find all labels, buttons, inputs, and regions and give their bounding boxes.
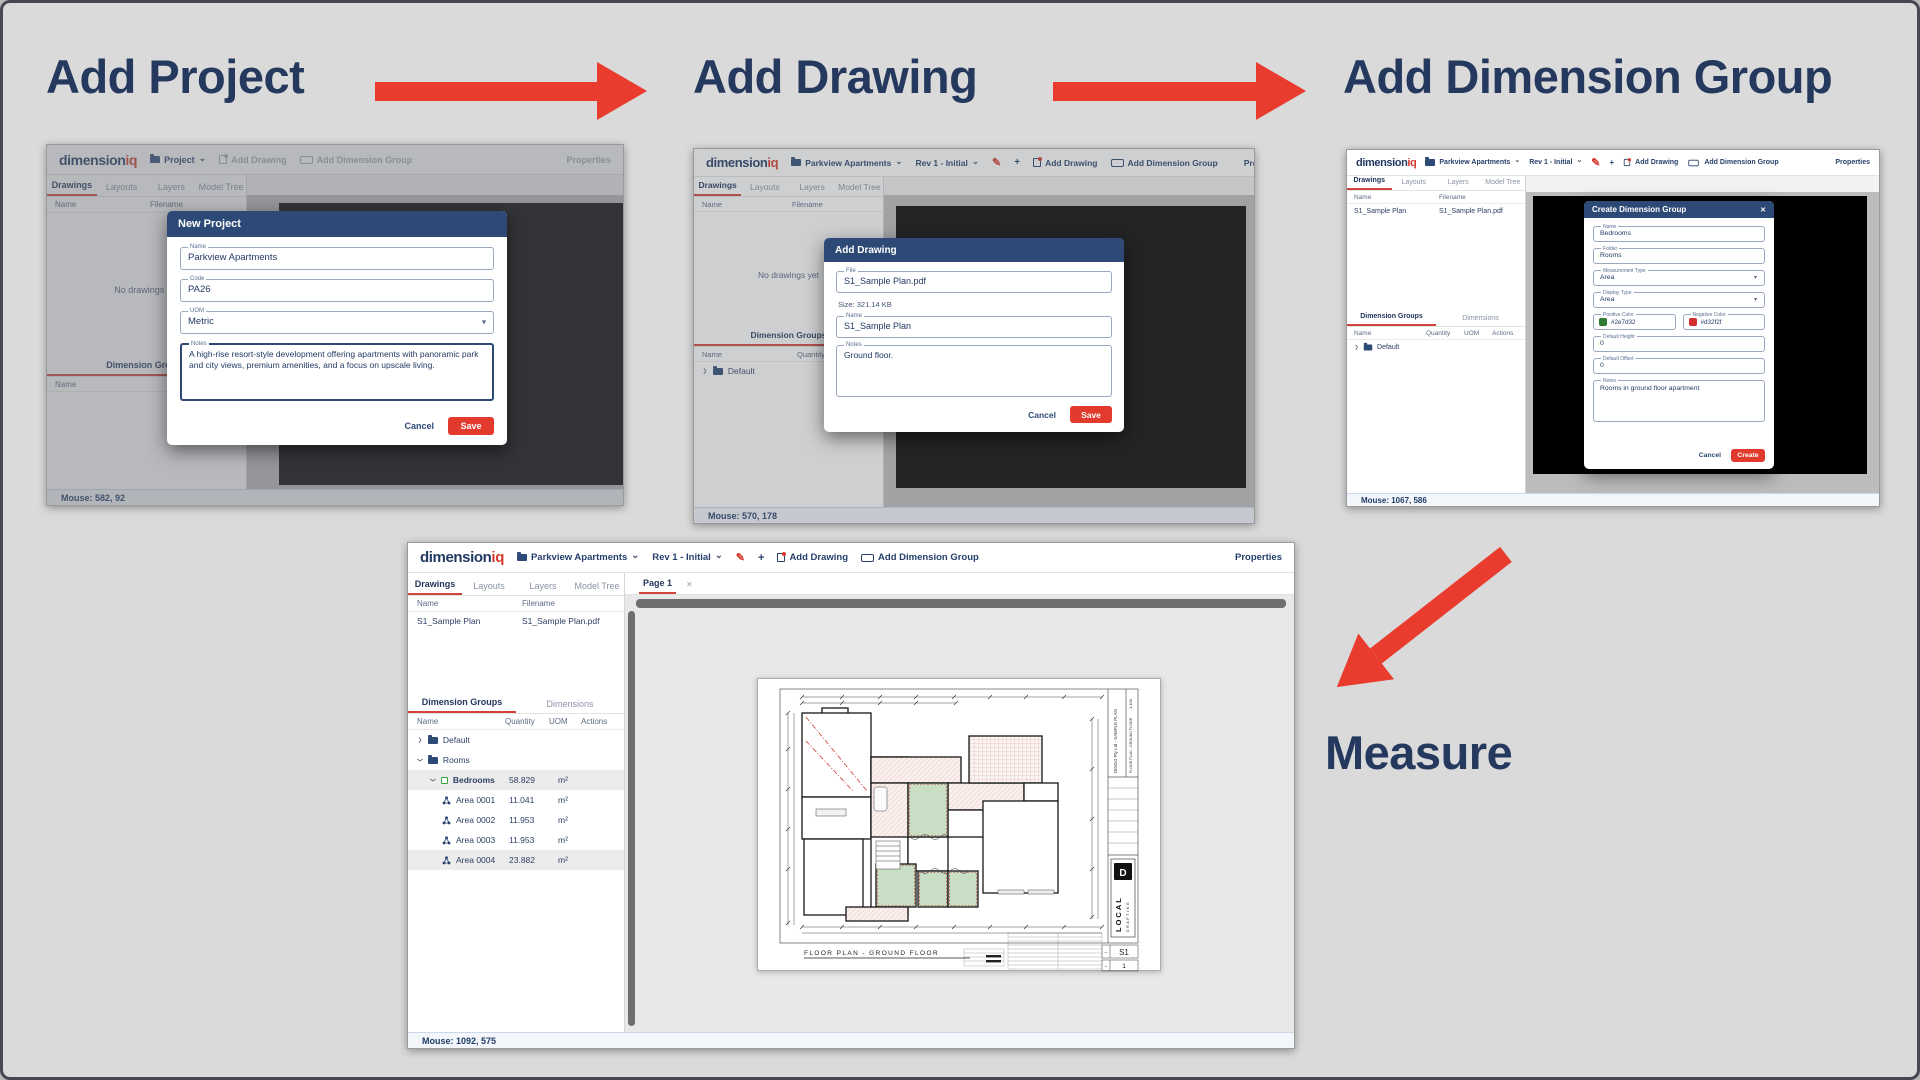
drawing-row[interactable]: S1_Sample Plan S1_Sample Plan.pdf xyxy=(1347,204,1525,218)
tab-layouts[interactable]: Layouts xyxy=(97,182,147,196)
app-logo: dimensioniq xyxy=(420,549,504,566)
vertical-scrollbar[interactable] xyxy=(628,611,635,1026)
create-button[interactable]: Create xyxy=(1731,449,1765,462)
add-dimension-group-button[interactable]: Add Dimension Group xyxy=(1687,159,1778,167)
folder-icon xyxy=(791,159,801,166)
modal-title: New Project xyxy=(167,211,507,237)
tutorial-canvas: Add Project Add Drawing Add Dimension Gr… xyxy=(0,0,1920,1080)
chevron-down-icon xyxy=(430,776,436,784)
folder-icon xyxy=(713,368,723,375)
folder-icon xyxy=(150,156,160,163)
negative-color-swatch[interactable] xyxy=(1689,318,1697,326)
new-project-modal: New Project Name Parkview Apartments Cod… xyxy=(167,211,507,445)
folder-field[interactable]: Folder Rooms xyxy=(1593,248,1765,264)
drawing-row[interactable]: S1_Sample Plan S1_Sample Plan.pdf xyxy=(408,612,624,629)
groups-col-quantity: Quantity xyxy=(505,717,549,726)
measurement-type-select[interactable]: Measurement Type Area xyxy=(1593,270,1765,286)
chevron-right-icon xyxy=(1354,344,1359,351)
status-bar: Mouse: 582, 92 xyxy=(47,489,623,505)
save-button[interactable]: Save xyxy=(1070,406,1112,423)
groups-col-actions: Actions xyxy=(1492,330,1518,337)
tab-dimension-groups[interactable]: Dimension Groups xyxy=(1347,313,1436,326)
tab-model-tree[interactable]: Model Tree xyxy=(570,581,624,595)
tab-dimensions[interactable]: Dimensions xyxy=(1436,315,1525,326)
chevron-down-icon xyxy=(715,552,723,563)
tab-drawings[interactable]: Drawings xyxy=(1347,177,1392,190)
save-button[interactable]: Save xyxy=(448,417,494,435)
chevron-right-icon xyxy=(417,736,423,744)
status-bar: Mouse: 1092, 575 xyxy=(408,1032,1294,1048)
tab-page-1[interactable]: Page 1 xyxy=(639,578,676,594)
revision-menu[interactable]: Rev 1 - Initial xyxy=(1529,159,1582,166)
app-logo: dimensioniq xyxy=(59,152,137,168)
folder-icon xyxy=(1364,345,1373,351)
sheet-number: S1 xyxy=(1119,948,1129,957)
dimension-group-icon xyxy=(441,777,448,784)
add-drawing-icon xyxy=(1624,159,1630,166)
page-tab-bar: Page 1 ✕ xyxy=(625,573,1294,595)
name-field[interactable]: Name Parkview Apartments xyxy=(180,247,494,270)
revision-menu[interactable]: Rev 1 - Initial xyxy=(915,158,979,168)
add-drawing-icon xyxy=(219,155,227,164)
edit-revision-icon[interactable] xyxy=(1591,156,1600,169)
drawings-col-filename: Filename xyxy=(522,599,555,608)
file-size-text: Size: 321.14 KB xyxy=(836,300,1112,309)
step-heading-add-drawing: Add Drawing xyxy=(693,49,977,104)
file-field[interactable]: File S1_Sample Plan.pdf xyxy=(836,271,1112,293)
close-page-tab-icon[interactable]: ✕ xyxy=(686,580,693,594)
tab-dimensions[interactable]: Dimensions xyxy=(516,699,624,713)
folder-icon xyxy=(517,554,527,561)
group-row-default[interactable]: Default xyxy=(1347,340,1525,355)
groups-col-name: Name xyxy=(702,350,797,359)
close-icon[interactable]: ✕ xyxy=(1760,206,1766,214)
tree-row-area-0002[interactable]: Area 0002 11.953 m² xyxy=(408,810,624,830)
add-drawing-button[interactable]: Add Drawing xyxy=(1033,158,1097,168)
status-bar: Mouse: 1067, 586 xyxy=(1347,493,1879,506)
floor-plan-drawing: DINGO Pty Ltd - SAMPLE PLAN FLOOR PLAN -… xyxy=(758,679,1162,972)
revision-menu[interactable]: Rev 1 - Initial xyxy=(652,552,723,563)
drawings-col-filename: Filename xyxy=(792,200,823,209)
add-dimension-group-button[interactable]: Add Dimension Group xyxy=(861,552,979,563)
notes-field[interactable]: Notes A high-rise resort-style developme… xyxy=(180,343,494,401)
properties-button: Properties xyxy=(566,155,611,165)
add-dimension-group-button[interactable]: Add Dimension Group xyxy=(1111,158,1218,168)
dropdown-arrow-icon xyxy=(1754,296,1757,303)
cancel-button[interactable]: Cancel xyxy=(1699,452,1721,459)
sidebar: Drawings Layouts Layers Model Tree Name … xyxy=(408,573,625,1032)
chevron-down-icon xyxy=(895,158,902,168)
folder-icon xyxy=(1425,159,1435,166)
chevron-down-icon xyxy=(1514,159,1520,166)
properties-button[interactable]: Properties xyxy=(1835,159,1870,166)
add-dimension-group-icon xyxy=(1111,159,1124,167)
area-icon xyxy=(442,856,451,865)
tree-row-group-bedrooms[interactable]: Bedrooms 58.829 m² xyxy=(408,770,624,790)
svg-text:–: – xyxy=(1105,950,1108,956)
arrow-diagonal-measure xyxy=(1319,532,1524,710)
tab-model-tree[interactable]: Model Tree xyxy=(836,182,883,196)
area-icon xyxy=(442,836,451,845)
chevron-down-icon xyxy=(1576,159,1582,166)
folder-icon xyxy=(428,737,438,744)
add-dimension-group-icon xyxy=(1689,159,1699,165)
drawings-col-name: Name xyxy=(1354,194,1439,201)
add-dimension-group-icon xyxy=(861,554,874,562)
properties-button[interactable]: Properties xyxy=(1244,158,1255,168)
screenshot-measure: dimensioniq Parkview Apartments Rev 1 - … xyxy=(407,542,1295,1049)
dropdown-arrow-icon xyxy=(482,317,486,326)
code-field[interactable]: Code PA26 xyxy=(180,279,494,302)
viewer-canvas: DINGO Pty Ltd - SAMPLE PLAN FLOOR PLAN -… xyxy=(625,595,1294,1032)
tab-dimension-groups[interactable]: Dimension Groups xyxy=(408,697,516,713)
groups-col-quantity: Quantity xyxy=(797,350,825,359)
tab-model-tree[interactable]: Model Tree xyxy=(1481,179,1526,190)
app-header: dimensioniq Parkview Apartments Rev 1 - … xyxy=(408,543,1294,573)
project-menu[interactable]: Parkview Apartments xyxy=(791,158,902,168)
tab-layers[interactable]: Layers xyxy=(516,581,570,595)
screenshot-add-dimension-group: dimensioniq Parkview Apartments Rev 1 - … xyxy=(1346,149,1880,507)
positive-color-field[interactable]: Positive Color #2e7d32 xyxy=(1593,314,1676,330)
project-menu[interactable]: Parkview Apartments xyxy=(517,552,639,563)
edit-revision-icon[interactable] xyxy=(736,551,745,564)
app-logo: dimensioniq xyxy=(1356,157,1416,169)
name-field[interactable]: Name Bedrooms xyxy=(1593,226,1765,242)
arrow-right-2 xyxy=(1053,62,1306,120)
groups-col-uom: UOM xyxy=(549,717,581,726)
tab-drawings[interactable]: Drawings xyxy=(408,579,462,595)
drawings-col-name: Name xyxy=(417,599,522,608)
default-height-field[interactable]: Default Height 0 xyxy=(1593,336,1765,352)
tab-layouts[interactable]: Layouts xyxy=(741,182,788,196)
chevron-down-icon xyxy=(199,155,207,165)
edit-revision-icon[interactable] xyxy=(992,156,1001,169)
tab-layers[interactable]: Layers xyxy=(1436,179,1481,190)
add-revision-icon[interactable] xyxy=(1014,157,1020,168)
groups-col-name: Name xyxy=(417,717,505,726)
project-menu[interactable]: Project xyxy=(150,155,206,165)
cancel-button[interactable]: Cancel xyxy=(404,421,434,431)
tree-row-area-0003[interactable]: Area 0003 11.953 m² xyxy=(408,830,624,850)
app-header: dimensioniq Parkview Apartments Rev 1 - … xyxy=(1347,150,1879,176)
svg-text:D: D xyxy=(1119,868,1126,879)
svg-text:–: – xyxy=(1105,964,1108,970)
plan-title: FLOOR PLAN - GROUND FLOOR xyxy=(804,950,939,957)
arrow-right-1 xyxy=(375,62,647,120)
svg-text:DRAFTING: DRAFTING xyxy=(1126,901,1130,932)
chevron-down-icon xyxy=(972,158,979,168)
groups-col-actions: Actions xyxy=(581,717,615,726)
area-icon xyxy=(442,816,451,825)
drawings-col-filename: Filename xyxy=(1439,194,1466,201)
default-offset-field[interactable]: Default Offset 0 xyxy=(1593,358,1765,374)
horizontal-scrollbar[interactable] xyxy=(636,599,1286,608)
properties-button[interactable]: Properties xyxy=(1235,552,1282,563)
drawings-col-name: Name xyxy=(55,200,150,209)
add-dimension-group-button: Add Dimension Group xyxy=(300,155,413,165)
drawings-col-name: Name xyxy=(702,200,792,209)
uom-select[interactable]: UOM Metric xyxy=(180,311,494,334)
area-icon xyxy=(442,796,451,805)
chevron-down-icon xyxy=(417,756,423,764)
tab-layouts[interactable]: Layouts xyxy=(462,581,516,595)
add-drawing-button[interactable]: Add Drawing xyxy=(1623,158,1678,167)
drawings-col-filename: Filename xyxy=(150,200,183,209)
groups-col-name: Name xyxy=(55,380,76,389)
tab-layouts[interactable]: Layouts xyxy=(1392,179,1437,190)
tree-row-folder-default[interactable]: Default xyxy=(408,730,624,750)
revision-number: 1 xyxy=(1122,963,1126,970)
tab-drawings[interactable]: Drawings xyxy=(694,180,741,196)
add-drawing-button[interactable]: Add Drawing xyxy=(777,552,848,563)
add-drawing-icon xyxy=(1033,158,1041,167)
svg-text:LOCAL: LOCAL xyxy=(1114,896,1123,932)
app-header: dimensioniq Parkview Apartments Rev 1 - … xyxy=(694,149,1254,177)
status-bar: Mouse: 570, 178 xyxy=(694,507,1254,523)
tab-layers[interactable]: Layers xyxy=(147,182,197,196)
svg-text:FLOOR PLAN - GROUND FLOOR: FLOOR PLAN - GROUND FLOOR xyxy=(1129,717,1133,773)
add-drawing-modal: Add Drawing File S1_Sample Plan.pdf Size… xyxy=(824,238,1124,432)
app-header: dimensioniq Project Add Drawing Add Dime… xyxy=(47,145,623,175)
add-revision-icon[interactable] xyxy=(758,552,764,564)
groups-col-quantity: Quantity xyxy=(1426,330,1464,337)
svg-text:1:100: 1:100 xyxy=(1128,698,1133,709)
add-dimension-group-icon xyxy=(300,156,313,164)
cancel-button[interactable]: Cancel xyxy=(1028,410,1056,420)
groups-col-uom: UOM xyxy=(1464,330,1492,337)
floor-plan-sheet: DINGO Pty Ltd - SAMPLE PLAN FLOOR PLAN -… xyxy=(757,678,1161,971)
app-logo: dimensioniq xyxy=(706,155,778,170)
tab-layers[interactable]: Layers xyxy=(789,182,836,196)
screenshot-add-project: dimensioniq Project Add Drawing Add Dime… xyxy=(46,144,624,506)
notes-field[interactable]: Notes Rooms in ground floor apartment xyxy=(1593,380,1765,422)
tree-row-folder-rooms[interactable]: Rooms xyxy=(408,750,624,770)
negative-color-field[interactable]: Negative Color #d32f2f xyxy=(1683,314,1766,330)
chevron-right-icon xyxy=(702,367,708,375)
add-revision-icon[interactable] xyxy=(1609,158,1614,167)
svg-text:DINGO Pty Ltd - SAMPLE PLAN: DINGO Pty Ltd - SAMPLE PLAN xyxy=(1113,709,1118,773)
tree-row-area-0001[interactable]: Area 0001 11.041 m² xyxy=(408,790,624,810)
dropdown-arrow-icon xyxy=(1754,274,1757,281)
project-menu[interactable]: Parkview Apartments xyxy=(1425,159,1520,166)
folder-icon xyxy=(428,757,438,764)
tree-row-area-0004[interactable]: Area 0004 23.882 m² xyxy=(408,850,624,870)
sidebar: Drawings Layouts Layers Model Tree Name … xyxy=(1347,176,1526,493)
add-drawing-icon xyxy=(777,553,785,562)
step-heading-measure: Measure xyxy=(1325,725,1512,780)
modal-title: Add Drawing xyxy=(824,238,1124,262)
groups-col-name: Name xyxy=(1354,330,1426,337)
positive-color-swatch[interactable] xyxy=(1599,318,1607,326)
notes-field[interactable]: Notes Ground floor. xyxy=(836,345,1112,397)
tab-drawings[interactable]: Drawings xyxy=(47,180,97,196)
step-heading-add-project: Add Project xyxy=(46,49,304,104)
add-drawing-button: Add Drawing xyxy=(219,155,287,165)
chevron-down-icon xyxy=(631,552,639,563)
create-dimension-group-modal: Create Dimension Group ✕ Name Bedrooms F… xyxy=(1584,201,1774,469)
display-type-select[interactable]: Display Type Area xyxy=(1593,292,1765,308)
name-field[interactable]: Name S1_Sample Plan xyxy=(836,316,1112,338)
screenshot-add-drawing: dimensioniq Parkview Apartments Rev 1 - … xyxy=(693,148,1255,524)
step-heading-add-dimension-group: Add Dimension Group xyxy=(1343,49,1832,104)
modal-title: Create Dimension Group ✕ xyxy=(1584,201,1774,218)
tab-model-tree[interactable]: Model Tree xyxy=(196,182,246,196)
